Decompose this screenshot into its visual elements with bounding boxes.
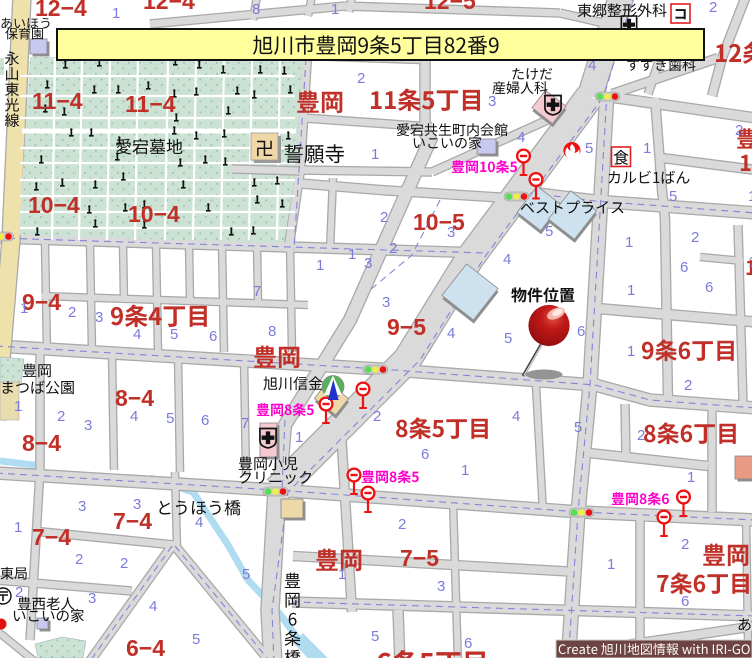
svg-text:3: 3: [78, 498, 86, 515]
svg-text:5: 5: [371, 628, 379, 645]
svg-text:3: 3: [95, 309, 103, 326]
svg-text:12−4: 12−4: [143, 0, 195, 14]
svg-text:1: 1: [20, 300, 28, 317]
svg-text:1: 1: [687, 469, 695, 486]
svg-text:2: 2: [691, 229, 699, 246]
svg-text:11−4: 11−4: [125, 91, 176, 117]
svg-text:6: 6: [421, 446, 429, 463]
svg-text:6: 6: [209, 328, 217, 345]
svg-text:4: 4: [130, 408, 138, 425]
svg-text:7: 7: [241, 415, 249, 432]
svg-text:5: 5: [166, 410, 174, 427]
svg-text:2: 2: [357, 70, 365, 87]
svg-text:4: 4: [195, 514, 203, 531]
svg-text:1: 1: [295, 429, 303, 446]
svg-text:5: 5: [170, 326, 178, 343]
svg-text:4: 4: [149, 598, 157, 615]
svg-text:10−4: 10−4: [128, 201, 180, 227]
svg-text:7−4: 7−4: [32, 524, 71, 550]
svg-text:10−4: 10−4: [28, 192, 80, 218]
svg-text:1: 1: [748, 254, 752, 271]
svg-text:1: 1: [461, 462, 469, 479]
svg-text:1: 1: [748, 188, 752, 205]
svg-text:11−4: 11−4: [32, 88, 83, 114]
svg-text:5: 5: [192, 631, 200, 648]
svg-text:2: 2: [681, 536, 689, 553]
svg-text:6: 6: [464, 635, 472, 652]
svg-text:2: 2: [57, 408, 65, 425]
svg-text:5: 5: [585, 140, 593, 157]
svg-text:5: 5: [574, 419, 582, 436]
svg-text:1: 1: [643, 140, 651, 157]
svg-text:3: 3: [437, 578, 445, 595]
svg-text:3: 3: [84, 417, 92, 434]
svg-text:10−5: 10−5: [413, 209, 465, 235]
svg-text:5: 5: [242, 566, 250, 583]
svg-text:5: 5: [545, 223, 553, 240]
svg-text:6: 6: [681, 593, 689, 610]
svg-text:4: 4: [447, 325, 455, 342]
svg-text:1: 1: [112, 5, 120, 22]
svg-text:1: 1: [14, 398, 22, 415]
svg-text:4: 4: [133, 326, 141, 343]
svg-text:1: 1: [627, 343, 635, 360]
svg-text:1: 1: [14, 519, 22, 536]
svg-text:1: 1: [607, 556, 615, 573]
svg-text:3: 3: [133, 496, 141, 513]
svg-text:7: 7: [253, 283, 261, 300]
svg-text:2: 2: [75, 551, 83, 568]
svg-text:12−4: 12−4: [35, 0, 87, 21]
svg-text:2: 2: [373, 408, 381, 425]
svg-text:4: 4: [503, 251, 511, 268]
svg-text:1: 1: [627, 282, 635, 299]
svg-text:2: 2: [684, 377, 692, 394]
svg-text:6: 6: [705, 279, 713, 296]
svg-text:2: 2: [735, 122, 743, 139]
svg-text:8−4: 8−4: [22, 430, 61, 456]
svg-text:1: 1: [371, 146, 379, 163]
svg-text:1: 1: [331, 1, 339, 18]
svg-text:3: 3: [382, 294, 390, 311]
svg-text:9−5: 9−5: [387, 314, 426, 340]
svg-text:1: 1: [625, 234, 633, 251]
svg-text:3: 3: [488, 93, 496, 110]
svg-text:6: 6: [577, 323, 585, 340]
svg-text:7−5: 7−5: [400, 545, 439, 571]
svg-text:6: 6: [201, 412, 209, 429]
svg-text:3: 3: [364, 255, 372, 272]
svg-text:4: 4: [512, 408, 520, 425]
svg-text:2: 2: [637, 427, 645, 444]
svg-text:4: 4: [517, 129, 525, 146]
svg-text:2: 2: [389, 240, 397, 257]
svg-text:6: 6: [680, 259, 688, 276]
svg-text:5: 5: [669, 188, 677, 205]
svg-text:8: 8: [268, 323, 276, 340]
svg-text:1: 1: [348, 246, 356, 263]
svg-text:12−5: 12−5: [424, 0, 476, 14]
svg-text:2: 2: [68, 304, 76, 321]
svg-text:2: 2: [15, 584, 23, 601]
svg-text:3: 3: [88, 590, 96, 607]
svg-text:5: 5: [504, 330, 512, 347]
svg-text:2: 2: [120, 555, 128, 572]
svg-text:1: 1: [316, 257, 324, 274]
svg-text:2: 2: [398, 516, 406, 533]
svg-text:6−4: 6−4: [126, 635, 165, 658]
svg-text:2: 2: [380, 209, 388, 226]
svg-text:2: 2: [709, 0, 717, 16]
svg-text:1: 1: [338, 566, 346, 583]
svg-text:8: 8: [252, 1, 260, 18]
svg-text:3: 3: [447, 224, 455, 241]
